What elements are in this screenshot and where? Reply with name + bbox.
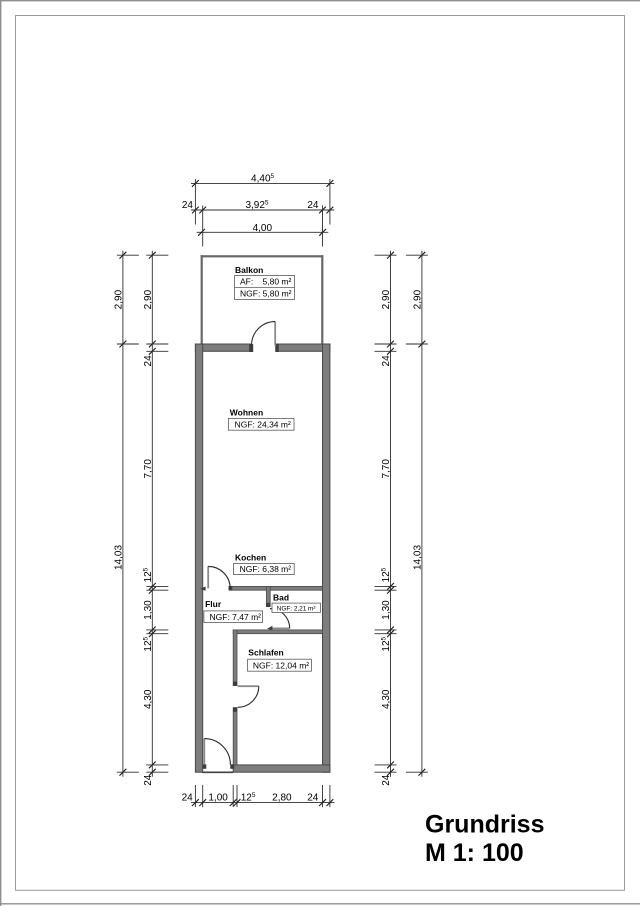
svg-text:7,70: 7,70 <box>143 459 154 479</box>
svg-text:24: 24 <box>143 355 154 367</box>
svg-text:24: 24 <box>182 200 194 211</box>
svg-text:Flur: Flur <box>205 599 222 609</box>
svg-text:24: 24 <box>143 774 154 786</box>
svg-text:7,70: 7,70 <box>381 459 392 479</box>
svg-text:Wohnen: Wohnen <box>230 408 263 418</box>
svg-text:Bad: Bad <box>273 592 289 602</box>
svg-text:5,80 m²: 5,80 m² <box>263 276 292 286</box>
svg-text:Balkon: Balkon <box>235 265 263 275</box>
svg-text:2,90: 2,90 <box>113 289 124 309</box>
svg-text:NGF: 2,21 m²: NGF: 2,21 m² <box>277 606 316 613</box>
svg-text:Kochen: Kochen <box>235 552 266 562</box>
svg-text:2,90: 2,90 <box>412 289 423 309</box>
svg-text:NGF: 7,47 m²: NGF: 7,47 m² <box>210 612 262 622</box>
svg-text:Grundriss: Grundriss <box>425 811 544 839</box>
svg-text:14,03: 14,03 <box>412 545 423 570</box>
svg-text:14,03: 14,03 <box>113 545 124 570</box>
svg-text:4,30: 4,30 <box>143 689 154 709</box>
svg-text:2,80: 2,80 <box>272 793 292 804</box>
svg-text:M 1: 100: M 1: 100 <box>425 839 524 867</box>
svg-text:1,00: 1,00 <box>208 793 228 804</box>
svg-text:NGF: 24,34 m²: NGF: 24,34 m² <box>235 420 291 430</box>
svg-text:2,90: 2,90 <box>381 289 392 309</box>
svg-text:NGF: 5,80 m²: NGF: 5,80 m² <box>240 289 292 299</box>
svg-text:AF:: AF: <box>240 276 253 286</box>
svg-text:24: 24 <box>381 774 392 786</box>
svg-text:NGF: 6,38 m²: NGF: 6,38 m² <box>240 564 292 574</box>
svg-text:1,30: 1,30 <box>143 600 154 620</box>
svg-text:24: 24 <box>182 793 194 804</box>
svg-text:24: 24 <box>381 355 392 367</box>
svg-text:1,30: 1,30 <box>381 600 392 620</box>
svg-text:NGF: 12,04 m²: NGF: 12,04 m² <box>253 660 309 670</box>
svg-text:4,00: 4,00 <box>253 223 273 234</box>
svg-text:Schlafen: Schlafen <box>248 648 283 658</box>
svg-text:24: 24 <box>307 200 319 211</box>
svg-text:4,30: 4,30 <box>381 689 392 709</box>
svg-text:24: 24 <box>307 793 319 804</box>
svg-text:2,90: 2,90 <box>143 289 154 309</box>
